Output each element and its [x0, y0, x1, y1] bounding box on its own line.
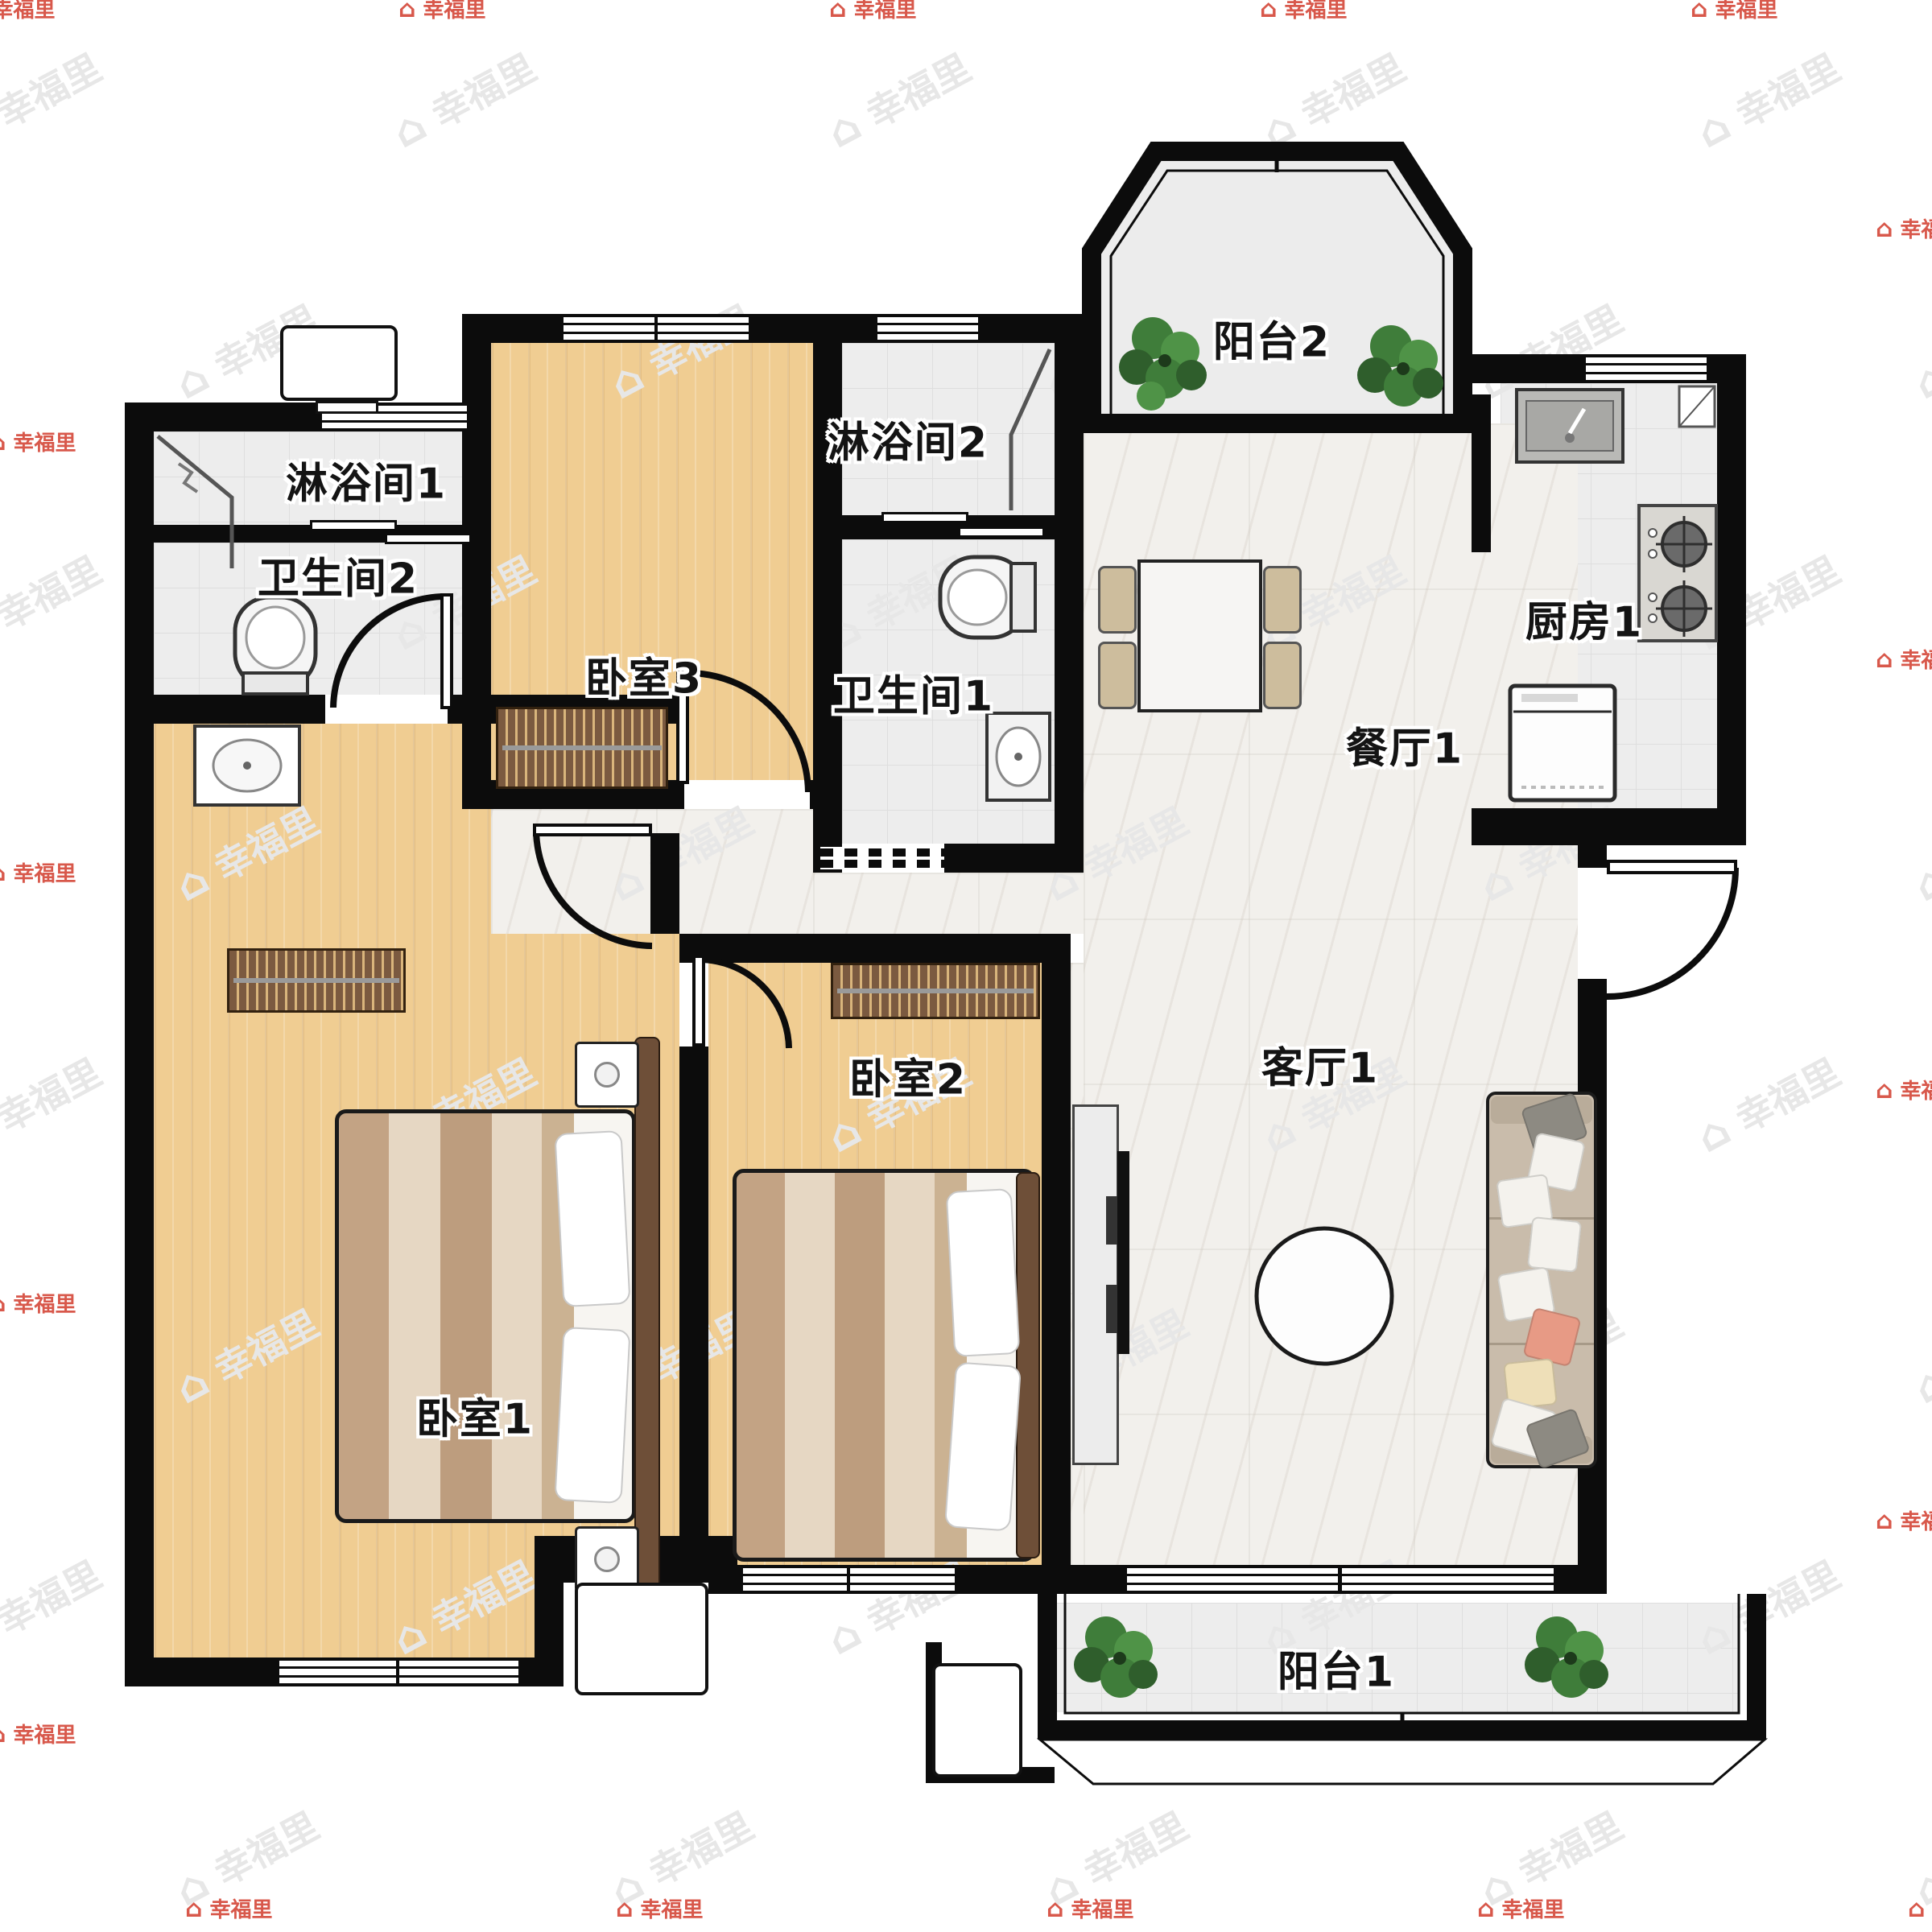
window-mullion — [847, 1567, 850, 1592]
dining-chair — [1098, 566, 1137, 634]
plant-balcony1-left — [1074, 1616, 1158, 1698]
pillow — [944, 1361, 1022, 1531]
sofa-cushion — [1527, 1216, 1582, 1273]
wardrobe-rail — [233, 978, 399, 983]
room-label-kitchen-1: 厨房1 — [1525, 588, 1643, 649]
room-label-shower-1: 淋浴间1 — [286, 450, 447, 510]
pillow — [554, 1130, 630, 1307]
tv-mount — [1106, 1285, 1117, 1333]
door-arc-bedroom-1 — [536, 830, 652, 946]
pillow — [554, 1327, 630, 1504]
stove — [1639, 506, 1716, 641]
wardrobe-rail — [837, 989, 1034, 993]
ac-unit-base — [316, 401, 378, 414]
wardrobe-rail — [502, 745, 662, 750]
door-arc-bedroom-2 — [699, 960, 789, 1048]
washer-balcony-1 — [932, 1663, 1022, 1777]
door-bedroom-2 — [692, 955, 705, 1046]
window-mullion — [654, 316, 658, 341]
nightstand-lamp — [594, 1546, 620, 1572]
room-label-living-1: 客厅1 — [1261, 1034, 1379, 1095]
room-label-bedroom-2: 卧室2 — [849, 1046, 967, 1106]
nightstand-lamp — [594, 1062, 620, 1088]
dining-table — [1137, 559, 1262, 712]
plant-balcony1-right — [1525, 1616, 1608, 1698]
door-bath-2 — [440, 593, 453, 709]
kitchen-sink — [1517, 390, 1623, 462]
pillow — [946, 1188, 1021, 1357]
sink-bath-1 — [987, 713, 1050, 800]
door-arc-bath-2 — [333, 597, 445, 708]
door-entry — [1607, 860, 1737, 874]
dining-chair — [1263, 566, 1302, 634]
vanity-sink-bedroom1-nook — [195, 726, 299, 805]
dining-chair — [1263, 642, 1302, 709]
headboard-bedroom-2 — [1016, 1172, 1040, 1558]
toilet-bath-2 — [235, 597, 316, 694]
ac-unit-top-left — [280, 325, 398, 401]
shower-glass-2 — [1011, 349, 1050, 510]
floor-plan-canvas: ⌂ 幸福里⌂ 幸福里⌂ 幸福里⌂ 幸福里⌂ 幸福里⌂ 幸福里⌂ 幸福里⌂ 幸福里… — [0, 0, 1932, 1932]
room-label-balcony-1: 阳台1 — [1278, 1638, 1395, 1699]
door-arc-entry — [1607, 868, 1736, 997]
window-mullion — [1338, 1567, 1342, 1592]
door-bedroom-1 — [533, 824, 652, 836]
door-arc-bedroom-3 — [689, 673, 808, 792]
headboard-bedroom-1 — [634, 1037, 660, 1596]
room-label-shower-2: 淋浴间2 — [828, 409, 989, 469]
ac-unit-bedrooms — [575, 1583, 708, 1695]
room-label-dining-1: 餐厅1 — [1346, 715, 1463, 775]
room-label-balcony-2: 阳台2 — [1213, 308, 1331, 369]
window-mullion — [396, 1659, 399, 1685]
sliding-door — [958, 526, 1045, 538]
sliding-door — [385, 533, 472, 544]
fridge — [1510, 686, 1615, 800]
sliding-door — [310, 520, 397, 531]
toilet-bath-1 — [940, 557, 1035, 638]
sliding-door-dashed — [820, 847, 944, 869]
tv-mount — [1106, 1196, 1117, 1245]
room-label-bath-1: 卫生间1 — [833, 663, 994, 723]
room-label-bath-2: 卫生间2 — [258, 545, 419, 605]
dining-chair — [1098, 642, 1137, 709]
room-label-bedroom-1: 卧室1 — [416, 1385, 534, 1446]
coffee-table — [1257, 1228, 1392, 1364]
tv-screen — [1117, 1151, 1129, 1354]
balcony-1-outline — [1047, 1594, 1757, 1730]
room-label-bedroom-3: 卧室3 — [585, 645, 703, 705]
sliding-door — [881, 512, 968, 523]
shower-glass-1 — [158, 436, 232, 568]
